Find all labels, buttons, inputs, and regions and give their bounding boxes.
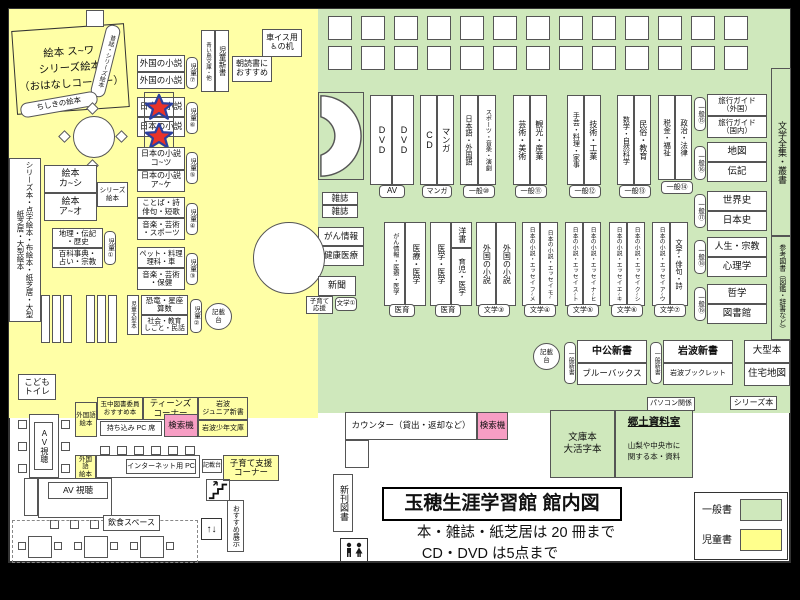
study-table xyxy=(625,46,649,70)
life-religion-shelf: 人生・宗教 xyxy=(707,237,767,257)
chair xyxy=(166,542,174,550)
local-archive-desc: 山梨や中央市に 関する本・資料 xyxy=(617,436,691,466)
cancer-info-shelf: がん情報 xyxy=(318,227,364,246)
tag-bungaku-5: 文学⑤ xyxy=(567,304,599,317)
study-table xyxy=(460,46,484,70)
childcare-support-corner: 子育て支援 コーナー xyxy=(223,455,279,481)
search-terminal: 検索機 xyxy=(477,412,508,440)
writing-stand-2: 記載 台 xyxy=(533,343,560,370)
chair xyxy=(130,542,138,550)
japan-history-shelf: 日本史 xyxy=(707,211,767,231)
philosophy-shelf: 哲学 xyxy=(707,284,767,304)
library-floor-map-screenshot: 絵本 ス~ワ シリーズ絵本 （おはなしコーナー）昔話・シリーズ絵本ちしきの絵本シ… xyxy=(0,0,800,600)
star-marker xyxy=(144,92,174,122)
empty-shelf xyxy=(108,295,117,343)
tag-ippan-10: 一般⑩ xyxy=(463,185,495,198)
chair xyxy=(18,464,27,473)
chair xyxy=(117,446,127,455)
cafe-table xyxy=(28,536,52,558)
study-table xyxy=(526,16,550,40)
technology-shelf: 技術・工業 xyxy=(584,95,601,185)
search-terminal: 検索機 xyxy=(164,414,198,437)
chair xyxy=(18,442,27,451)
iwanami-booklet-shelf: 岩波ブックレット xyxy=(663,363,733,385)
chair xyxy=(134,446,144,455)
empty-shelf xyxy=(97,295,106,343)
music-art-health-shelf: 音楽・芸術 ・保健 xyxy=(137,268,185,290)
travel-guide-foreign-shelf: 旅行ガイド （外国） xyxy=(707,94,767,116)
jp-fiction-fu-me: 日本の小説・エッセイ フ~メ xyxy=(522,222,540,306)
cafe-table xyxy=(84,536,108,558)
magazine-shelf: 雑誌 xyxy=(322,205,358,218)
lending-rule-books: 本・雑誌・紙芝居は 20 冊まで xyxy=(390,524,642,544)
tag-medical-2: 医育 xyxy=(435,304,461,317)
large-children-books-tag: 児童大型本 xyxy=(127,295,139,335)
cancer-medical-shelf: がん情報・医療・医学 xyxy=(384,222,405,306)
study-table xyxy=(592,46,616,70)
medicine-shelf: 医学・医学 xyxy=(430,222,451,306)
study-table xyxy=(361,46,385,70)
tag-shinsho-1: 一般新書 xyxy=(564,342,576,384)
study-table xyxy=(493,46,517,70)
small-box xyxy=(86,10,104,27)
tourism-industry-shelf: 観光・産業 xyxy=(530,95,547,185)
study-table xyxy=(724,46,748,70)
study-table xyxy=(724,16,748,40)
study-table xyxy=(526,46,550,70)
series-picturebook-badge: シリーズ 絵本 xyxy=(97,182,128,207)
society-shelf: 社会・教育 しごと・民話 xyxy=(141,315,188,335)
dvd-shelf: DVD xyxy=(392,95,414,185)
foreign-picturebooks-2: 外国語 絵本 xyxy=(75,455,96,479)
tag-jido-4: 児童④ xyxy=(186,203,198,235)
tag-jido-6: 児童⑥ xyxy=(186,102,198,134)
newspaper-shelf: 新聞 xyxy=(318,276,356,296)
psychology-shelf: 心理学 xyxy=(707,257,767,277)
study-table xyxy=(427,16,451,40)
study-table xyxy=(592,16,616,40)
words-poetry-shelf: ことば・詩 俳句・短歌 xyxy=(137,197,185,218)
bluebacks-shelf: ブルーバックス xyxy=(577,363,647,385)
tag-ippan-14: 一般⑭ xyxy=(661,181,693,194)
round-reading-table xyxy=(253,222,325,294)
empty-shelf xyxy=(41,295,50,343)
childcare-medical-shelf: 育児・医学 xyxy=(451,248,472,306)
tag-ippan-13: 一般⑬ xyxy=(619,185,651,198)
writing-stand-3: 記載台 xyxy=(202,459,222,473)
travel-guide-japan-shelf: 旅行ガイド （国内） xyxy=(707,116,767,138)
reference-books-shelf: 参考図書（図鑑・辞書など） xyxy=(771,236,791,340)
study-table xyxy=(559,16,583,40)
tag-pc-related: パソコン関係 xyxy=(647,397,695,411)
empty-shelf xyxy=(52,295,61,343)
bunko-room: 文庫本 大活字本 xyxy=(550,410,615,478)
world-history-shelf: 世界史 xyxy=(707,191,767,211)
jp-fiction-su-to: 日本の小説・エッセイ ス~ト xyxy=(565,222,583,306)
av-table-vertical-label: AV視聴 xyxy=(34,422,53,470)
study-table xyxy=(493,16,517,40)
eating-space-label: 飲食スペース xyxy=(103,515,160,531)
study-table xyxy=(658,46,682,70)
chair xyxy=(185,446,195,455)
tag-bungaku-3: 文学③ xyxy=(478,304,510,317)
music-art-sports-shelf: 音楽・芸術 ・スポーツ xyxy=(137,218,185,240)
tag-medical-1: 医育 xyxy=(389,304,415,317)
study-table xyxy=(625,16,649,40)
tag-ippan-15: 一般⑮ xyxy=(694,97,706,131)
local-archive-title: 郷土資料室 xyxy=(617,415,691,431)
tag-jido-7: 児童⑦ xyxy=(186,57,198,89)
study-table xyxy=(427,46,451,70)
foreign-novels-shelf: 外国の小説 xyxy=(137,55,185,72)
tag-jido-2: 児童② xyxy=(190,299,202,333)
handicraft-cooking-shelf: 手芸・料理・家事 xyxy=(567,95,584,185)
chair xyxy=(61,442,70,451)
chair xyxy=(151,446,161,455)
legend-children-label: 児童書 xyxy=(698,531,736,549)
tag-ippan-11: 一般⑪ xyxy=(515,185,547,198)
tag-ippan-17: 一般⑰ xyxy=(694,194,706,228)
tag-jido-1: 児童① xyxy=(104,231,116,265)
new-books-shelf: 新刊図書 xyxy=(333,474,353,532)
av-side-shelf xyxy=(24,478,38,516)
tag-ippan-12: 一般⑫ xyxy=(569,185,601,198)
internet-pc-label: インターネット用 PC xyxy=(126,459,196,474)
tag-bungaku-6: 文学⑥ xyxy=(611,304,643,317)
chair xyxy=(100,446,110,455)
tag-ippan-18: 一般⑱ xyxy=(694,240,706,274)
study-table xyxy=(559,46,583,70)
tag-shinsho-2: 一般新書 xyxy=(650,342,662,384)
chair xyxy=(110,542,118,550)
chair xyxy=(74,542,82,550)
chair xyxy=(54,542,62,550)
jp-fiction-mo: 日本の小説・エッセイ モ~ xyxy=(540,222,558,306)
children-shinsho-shelf: 児童新書 xyxy=(215,30,229,92)
japanese-novels-ko-tsu: 日本の小説 コ~ツ xyxy=(137,147,185,170)
chair xyxy=(61,464,70,473)
av-table-horizontal-label: AV 視聴 xyxy=(48,482,108,499)
lending-rule-av: CD・DVD は5点まで xyxy=(390,545,590,564)
tag-bungaku-7: 文学⑦ xyxy=(654,304,686,317)
geography-shelf: 地理・伝記 ・歴史 xyxy=(52,228,103,248)
legend-general-label: 一般書 xyxy=(698,501,736,519)
tag-ippan-16: 一般⑯ xyxy=(694,146,706,180)
literature-haiku-shelf: 文学・俳句・詩 xyxy=(670,222,688,306)
study-table xyxy=(460,16,484,40)
dvd-shelf: DVD xyxy=(370,95,392,185)
tag-manga: マンガ xyxy=(422,185,452,198)
map-title: 玉穂生涯学習館 館内図 xyxy=(382,487,622,521)
manga-shelf: マンガ xyxy=(437,95,454,185)
large-books-shelf: 大型本 xyxy=(744,340,790,363)
elevator-icon: ↑↓ xyxy=(201,518,222,540)
tag-jido-3: 児童③ xyxy=(186,253,198,285)
jp-fiction-e-ki: 日本の小説・エッセイ エ~キ xyxy=(609,222,627,306)
art-shelf: 芸術・美術 xyxy=(513,95,530,185)
picture-books-a-o: 絵本 ア~オ xyxy=(44,193,97,221)
study-table xyxy=(658,16,682,40)
iwanami-junior-shelf: 岩波 ジュニア新書 xyxy=(198,397,248,420)
literature-collection-shelf: 文学全集・叢書 xyxy=(771,68,791,236)
chair xyxy=(18,542,26,550)
legend-children-swatch xyxy=(740,529,782,551)
study-table xyxy=(394,46,418,70)
counter-leg xyxy=(345,440,369,468)
tag-series-books: シリーズ本 xyxy=(730,396,777,410)
jp-fiction-a-u: 日本の小説・エッセイ ア~ウ xyxy=(652,222,670,306)
tag-bungaku-4: 文学④ xyxy=(524,304,556,317)
politics-law-shelf: 政治・法律 xyxy=(675,95,692,180)
math-science-shelf: 数学・自然科学 xyxy=(617,95,634,185)
folklore-education-shelf: 民俗・教育 xyxy=(634,95,651,185)
foreign-picturebooks-1: 外国語 絵本 xyxy=(75,402,97,437)
kamishibai-series-shelf: シリーズ本・点字絵本・布絵本・紙芝居・大型紙芝居・大型絵本 xyxy=(9,158,41,322)
curved-desk xyxy=(318,92,364,180)
committee-recommend-shelf: 玉中図書委員 おすすめ本 xyxy=(97,397,143,420)
maps-shelf: 地図 xyxy=(707,142,767,162)
library-science-shelf: 図書館 xyxy=(707,304,767,324)
western-books-shelf: 洋書 xyxy=(451,222,472,248)
japanese-novels-a-ke: 日本の小説 ア~ケ xyxy=(137,170,185,192)
study-table xyxy=(691,46,715,70)
tag-ippan-19: 一般⑲ xyxy=(694,287,706,321)
cafe-table xyxy=(140,536,164,558)
reading-table xyxy=(73,116,115,158)
tag-jido-5: 児童⑤ xyxy=(186,152,198,184)
medical-shelf: 医療・医学 xyxy=(405,222,426,306)
wheelchair-desk: 車イス用 ♿の机 xyxy=(262,29,302,57)
iwanami-shonen-shelf: 岩波少年文庫 xyxy=(198,420,248,437)
recommend-display-shelf: おすすめ展示 xyxy=(227,500,244,552)
legend-general-swatch xyxy=(740,499,782,521)
study-table xyxy=(328,16,352,40)
morning-reading-box: 朝読書に おすすめ xyxy=(232,56,272,82)
cd-shelf: CD xyxy=(420,95,437,185)
empty-shelf xyxy=(86,295,95,343)
picture-books-ka-shi: 絵本 カ~シ xyxy=(44,165,97,193)
dinosaur-shelf: 恐竜・星座 算数 xyxy=(141,295,188,315)
iwanami-shinsho-shelf: 岩波新書 xyxy=(663,340,733,363)
chuko-shinsho-shelf: 中公新書 xyxy=(577,340,647,363)
bluebird-bunko-shelf: 青い鳥文庫・他 xyxy=(201,30,215,92)
housing-map-shelf: 住宅地図 xyxy=(744,363,790,386)
jp-fiction-na-hi: 日本の小説・エッセイ ナ~ヒ xyxy=(583,222,601,306)
jp-fiction-ku-shi: 日本の小説・エッセイ ク~シ xyxy=(627,222,645,306)
chair xyxy=(168,446,178,455)
foreign-fiction-shelf: 外国の小説 xyxy=(496,222,516,306)
foreign-novels-shelf: 外国の小説 xyxy=(137,72,185,89)
study-table xyxy=(394,16,418,40)
chair xyxy=(18,420,27,429)
study-table xyxy=(328,46,352,70)
writing-stand-1: 記載 台 xyxy=(205,303,232,330)
children-toilet: こども トイレ xyxy=(18,374,56,400)
counter: カウンター（貸出・返却など） xyxy=(345,412,477,440)
language-shelf: 日本語・外国語 xyxy=(460,95,478,185)
study-table xyxy=(361,16,385,40)
childcare-support-shelf: 子育て 応援 xyxy=(306,296,333,314)
pets-cooking-shelf: ペット・料理 理科・車 xyxy=(137,247,185,268)
encyclopedia-shelf: 百科事典・ 占い・宗教 xyxy=(52,248,103,268)
chair xyxy=(61,420,70,429)
biography-shelf: 伝記 xyxy=(707,162,767,182)
restroom-icon xyxy=(340,538,368,562)
tax-welfare-shelf: 税金・福祉 xyxy=(658,95,675,180)
magazine-shelf: 雑誌 xyxy=(322,192,358,205)
byod-pc-seats: 持ち込み PC 席 xyxy=(100,421,162,436)
foreign-fiction-shelf: 外国の小説 xyxy=(476,222,496,306)
sports-music-theater-shelf: スポーツ・音楽・演劇 xyxy=(478,95,496,185)
tag-bungaku-1: 文学① xyxy=(335,297,357,311)
empty-shelf xyxy=(63,295,72,343)
stairs-icon xyxy=(206,479,230,501)
study-table xyxy=(691,16,715,40)
tag-av: AV xyxy=(379,185,405,198)
